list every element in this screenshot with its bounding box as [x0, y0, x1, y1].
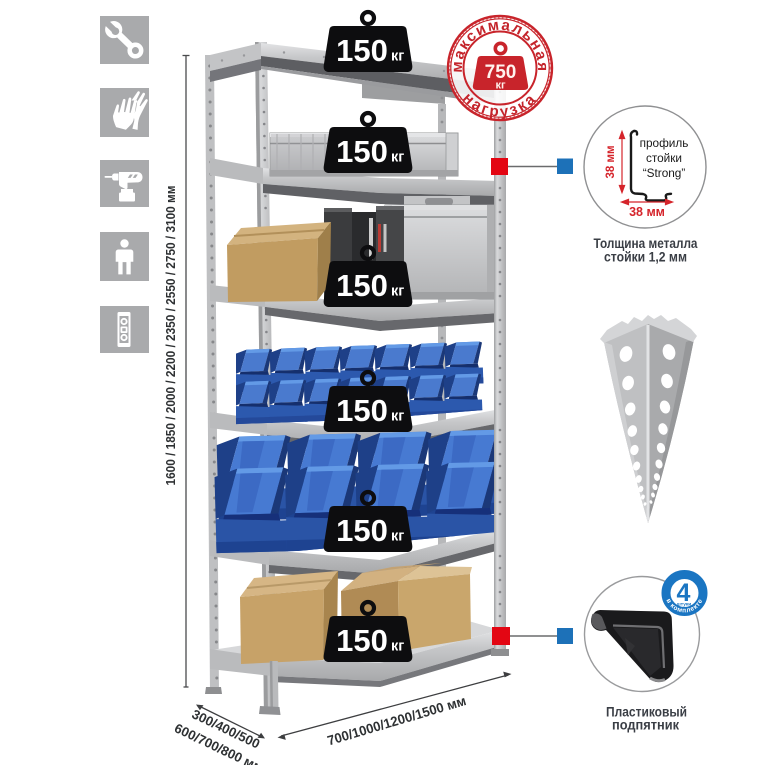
svg-text:38 мм: 38 мм	[605, 145, 617, 178]
svg-text:“Strong”: “Strong”	[643, 166, 686, 180]
svg-text:1600 / 1850 / 2000 / 2200 / 23: 1600 / 1850 / 2000 / 2200 / 2350 / 2550 …	[164, 186, 178, 486]
svg-text:подпятник: подпятник	[612, 717, 680, 733]
svg-text:стойки 1,2 мм: стойки 1,2 мм	[604, 249, 687, 265]
svg-text:кг: кг	[495, 80, 506, 92]
svg-text:стойки: стойки	[646, 151, 682, 165]
svg-text:профиль: профиль	[640, 136, 689, 150]
svg-text:38 мм: 38 мм	[629, 205, 665, 219]
